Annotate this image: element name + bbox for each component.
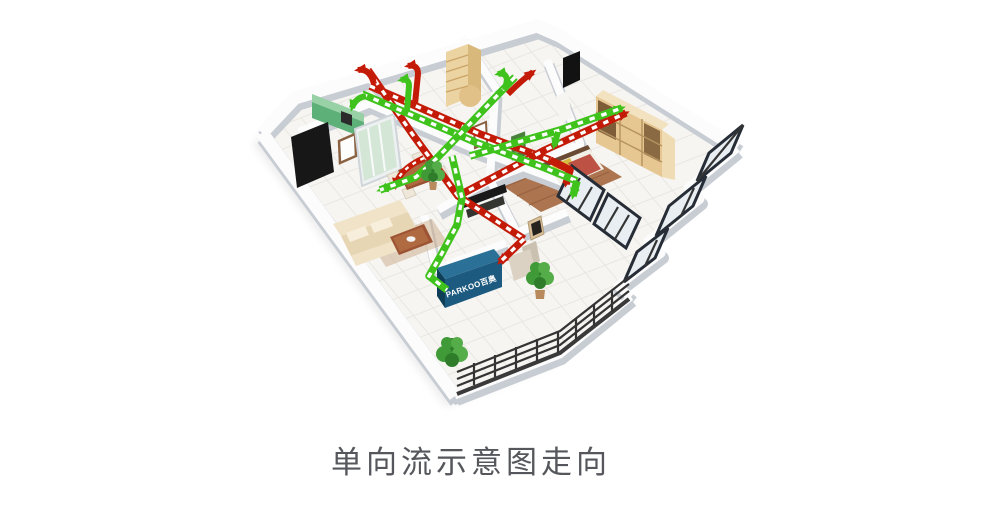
apartment-axonometric-illustration: PARKOO百奥 [0, 0, 1000, 510]
wardrobe-small [446, 44, 481, 107]
tray [407, 236, 416, 242]
supply-arrow-hook [554, 132, 558, 146]
page: PARKOO百奥 [0, 0, 1000, 510]
caption-title: 单向流示意图走向 [331, 437, 611, 482]
